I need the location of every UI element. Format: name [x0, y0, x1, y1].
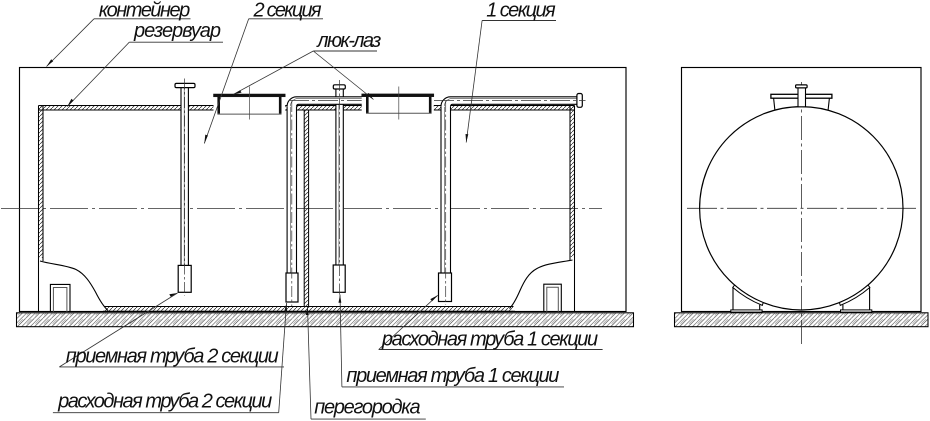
svg-text:люк-лаз: люк-лаз [316, 30, 381, 52]
svg-text:2 секция: 2 секция [253, 0, 322, 22]
svg-text:расходная труба 2 секции: расходная труба 2 секции [57, 391, 272, 413]
svg-text:1 секция: 1 секция [486, 0, 556, 22]
svg-text:приемная труба 2 секции: приемная труба 2 секции [66, 346, 279, 368]
svg-text:контейнер: контейнер [99, 0, 191, 21]
svg-text:резервуар: резервуар [133, 20, 221, 42]
svg-text:приемная труба 1 секции: приемная труба 1 секции [346, 365, 559, 387]
svg-text:перегородка: перегородка [314, 397, 420, 419]
svg-text:расходная труба 1 секции: расходная труба 1 секции [381, 328, 598, 350]
